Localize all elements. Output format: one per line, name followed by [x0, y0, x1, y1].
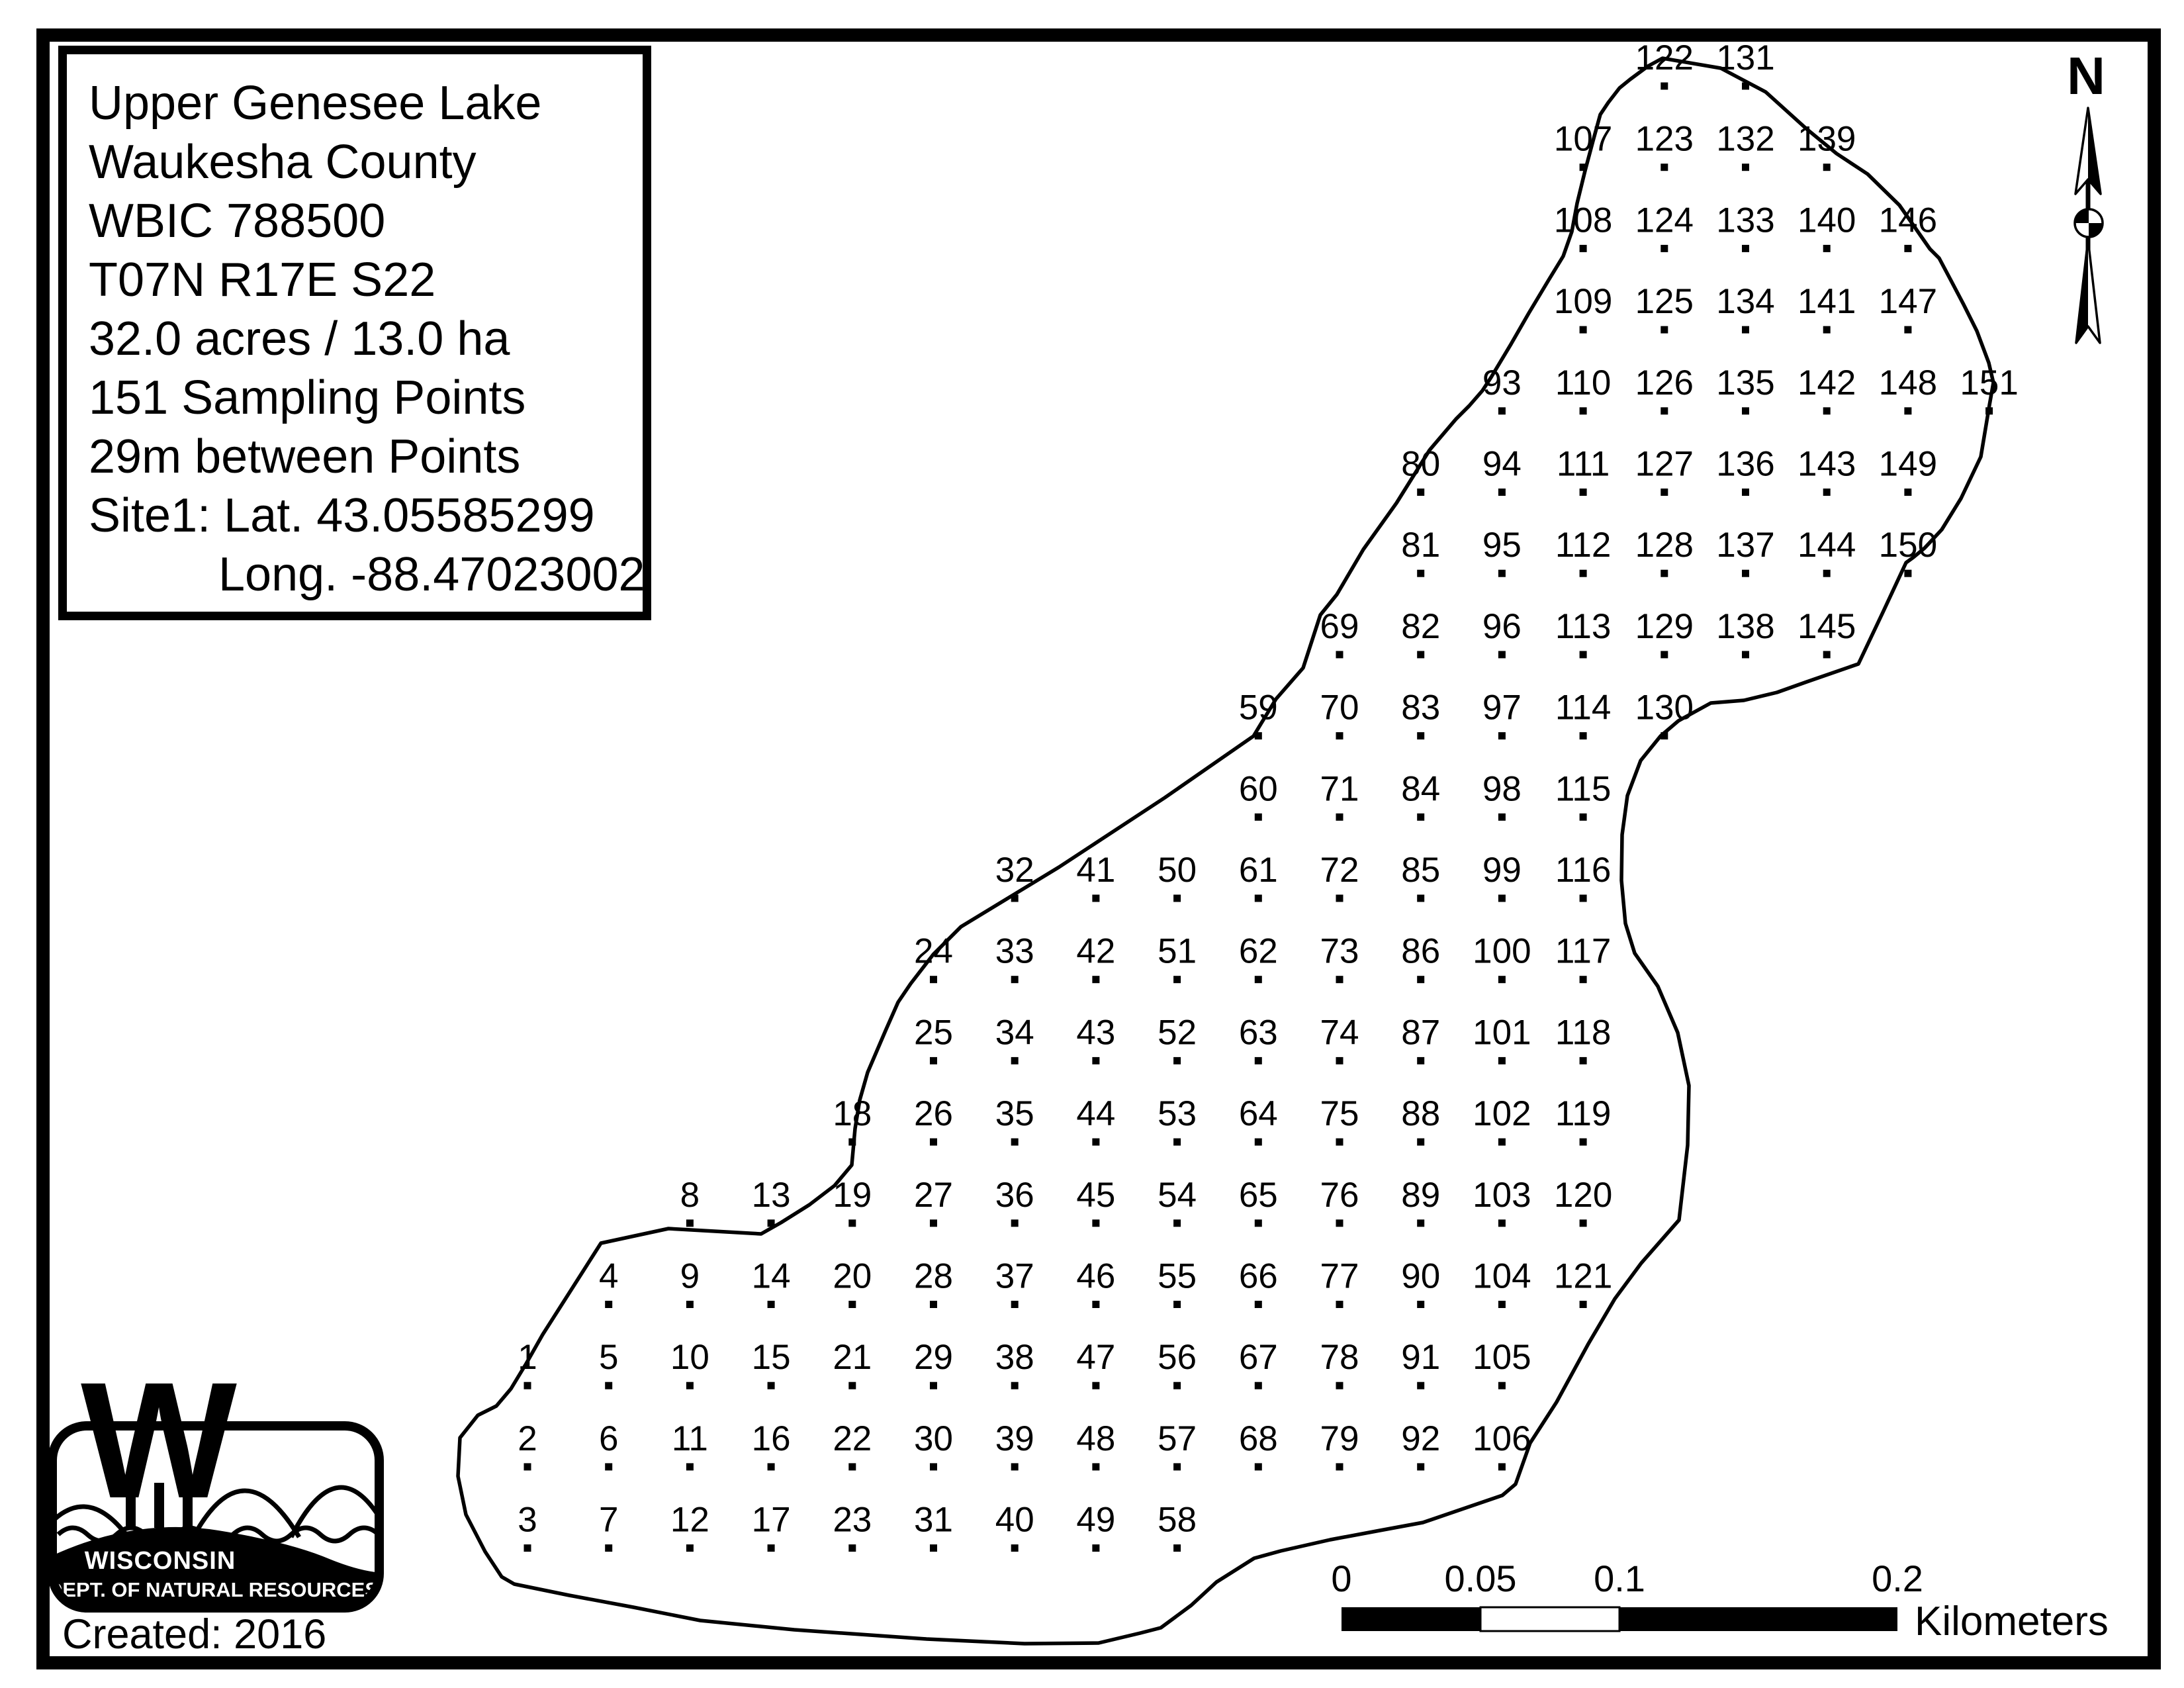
sampling-point-label: 36 [995, 1176, 1034, 1215]
sampling-point-label: 41 [1076, 851, 1115, 890]
sampling-point-label: 126 [1635, 363, 1694, 402]
sampling-point: 52 [1158, 1013, 1197, 1064]
sampling-point-dot [1742, 489, 1749, 496]
sampling-point: 95 [1482, 526, 1522, 577]
sampling-point-label: 140 [1797, 201, 1856, 240]
sampling-point-label: 14 [752, 1257, 791, 1296]
sampling-point: 113 [1555, 607, 1612, 659]
sampling-point: 30 [914, 1419, 953, 1471]
sampling-point-dot [930, 1057, 937, 1064]
lake-info-box: Upper Genesee Lake Waukesha County WBIC … [58, 46, 651, 620]
sampling-point-dot [1742, 407, 1749, 414]
sampling-point: 149 [1879, 445, 1937, 496]
sampling-point-dot [1173, 1057, 1181, 1064]
sampling-point-label: 112 [1555, 526, 1612, 565]
sampling-point: 109 [1554, 282, 1612, 334]
sampling-point-label: 71 [1320, 769, 1359, 808]
sampling-point-label: 94 [1482, 445, 1522, 484]
sampling-point: 58 [1158, 1501, 1197, 1552]
sampling-point-label: 111 [1557, 445, 1610, 484]
sampling-point-label: 24 [914, 932, 953, 971]
sampling-point-dot [1742, 164, 1749, 171]
sampling-point-label: 96 [1482, 607, 1522, 646]
sampling-point-label: 16 [752, 1419, 791, 1458]
sampling-point-label: 65 [1239, 1176, 1278, 1215]
sampling-point-dot [686, 1463, 694, 1470]
sampling-point: 135 [1716, 363, 1774, 415]
sampling-point-dot [1092, 1301, 1099, 1308]
sampling-point-dot [848, 1219, 856, 1227]
sampling-point-dot [686, 1301, 694, 1308]
sampling-point-label: 76 [1320, 1176, 1359, 1215]
sampling-point-dot [1255, 1463, 1262, 1470]
sampling-point-label: 98 [1482, 769, 1522, 808]
sampling-point-dot [1498, 732, 1506, 739]
sampling-point: 20 [833, 1257, 872, 1309]
sampling-point: 18 [833, 1094, 872, 1146]
sampling-point-dot [1336, 732, 1343, 739]
sampling-point-label: 32 [995, 851, 1034, 890]
sampling-point-label: 103 [1473, 1176, 1531, 1215]
sampling-point-label: 138 [1716, 607, 1774, 646]
sampling-point: 87 [1401, 1013, 1440, 1064]
sampling-point: 89 [1401, 1176, 1440, 1227]
sampling-point: 42 [1076, 932, 1115, 984]
sampling-point-label: 101 [1473, 1013, 1531, 1052]
sampling-point-dot [605, 1301, 612, 1308]
sampling-point: 92 [1401, 1419, 1440, 1471]
sampling-point: 79 [1320, 1419, 1359, 1471]
north-arrow-hub-quadrant-nw [2075, 209, 2089, 223]
sampling-point: 120 [1554, 1176, 1612, 1227]
scale-bar-segment-1 [1342, 1607, 1480, 1631]
sampling-point: 91 [1401, 1338, 1440, 1389]
sampling-point-label: 55 [1158, 1257, 1197, 1296]
sampling-point-dot [1092, 895, 1099, 902]
sampling-point: 60 [1239, 769, 1278, 821]
sampling-point-label: 13 [752, 1176, 791, 1215]
sampling-point: 112 [1555, 526, 1612, 577]
sampling-point-dot [686, 1382, 694, 1389]
sampling-point-label: 149 [1879, 445, 1937, 484]
sampling-point: 124 [1635, 201, 1694, 252]
sampling-point-dot [1580, 651, 1587, 658]
sampling-point-dot [1417, 489, 1424, 496]
sampling-point: 132 [1716, 120, 1774, 171]
sampling-point-dot [1498, 1301, 1506, 1308]
sampling-point-label: 54 [1158, 1176, 1197, 1215]
sampling-point-label: 62 [1239, 932, 1278, 971]
sampling-point-label: 124 [1635, 201, 1694, 240]
sampling-point: 93 [1482, 363, 1522, 415]
sampling-point-dot [930, 976, 937, 983]
sampling-point-dot [1092, 1544, 1099, 1552]
sampling-point: 77 [1320, 1257, 1359, 1309]
sampling-point-label: 18 [833, 1094, 872, 1133]
sampling-point-dot [1661, 164, 1668, 171]
sampling-point: 11 [672, 1419, 708, 1471]
sampling-point-dot [1661, 489, 1668, 496]
sampling-point-label: 64 [1239, 1094, 1278, 1133]
sampling-point: 125 [1635, 282, 1694, 334]
sampling-point: 28 [914, 1257, 953, 1309]
sampling-point-label: 70 [1320, 688, 1359, 727]
sampling-point: 69 [1320, 607, 1359, 659]
sampling-point-dot [1985, 407, 1993, 414]
sampling-point-dot [768, 1382, 775, 1389]
sampling-point-dot [1417, 1301, 1424, 1308]
sampling-point-dot [1255, 1057, 1262, 1064]
sampling-point-label: 119 [1555, 1094, 1612, 1133]
sampling-point: 1 [518, 1338, 537, 1389]
sampling-point-label: 116 [1555, 851, 1612, 890]
point-spacing: 29m between Points [89, 428, 629, 487]
sampling-point-dot [848, 1463, 856, 1470]
sampling-point-label: 38 [995, 1338, 1034, 1377]
sampling-point-dot [930, 1301, 937, 1308]
sampling-point-dot [1336, 1219, 1343, 1227]
sampling-point: 147 [1879, 282, 1937, 334]
sampling-point-dot [848, 1382, 856, 1389]
sampling-point-dot [1823, 651, 1831, 658]
sampling-point-dot [1498, 651, 1506, 658]
sampling-point-dot [1661, 407, 1668, 414]
sampling-point-label: 34 [995, 1013, 1034, 1052]
sampling-point: 53 [1158, 1094, 1197, 1146]
sampling-point-dot [686, 1544, 694, 1552]
sampling-point: 70 [1320, 688, 1359, 740]
sampling-point-dot [1580, 895, 1587, 902]
sampling-point-dot [1417, 1463, 1424, 1470]
sampling-point: 78 [1320, 1338, 1359, 1389]
sampling-point-label: 66 [1239, 1257, 1278, 1296]
sampling-point-label: 30 [914, 1419, 953, 1458]
sampling-point: 144 [1797, 526, 1856, 577]
sampling-point: 54 [1158, 1176, 1197, 1227]
county-name: Waukesha County [89, 133, 629, 192]
sampling-point: 12 [670, 1501, 709, 1552]
sampling-point-label: 31 [914, 1501, 953, 1540]
sampling-point-label: 92 [1401, 1419, 1440, 1458]
sampling-point-label: 125 [1635, 282, 1694, 321]
sampling-point-dot [605, 1463, 612, 1470]
sampling-point: 7 [599, 1501, 618, 1552]
sampling-point: 145 [1797, 607, 1856, 659]
sampling-point-label: 4 [599, 1257, 618, 1296]
sampling-point: 25 [914, 1013, 953, 1064]
sampling-point-label: 26 [914, 1094, 953, 1133]
sampling-point-dot [1904, 407, 1911, 414]
sampling-point: 8 [680, 1176, 700, 1227]
sampling-point-label: 12 [670, 1501, 709, 1540]
sampling-point-dot [1580, 1301, 1587, 1308]
sampling-point-label: 60 [1239, 769, 1278, 808]
sampling-point-label: 47 [1076, 1338, 1115, 1377]
sampling-point-dot [1823, 570, 1831, 577]
sampling-point-dot [1011, 895, 1019, 902]
sampling-point-dot [1498, 1057, 1506, 1064]
sampling-point-label: 67 [1239, 1338, 1278, 1377]
sampling-point-label: 33 [995, 932, 1034, 971]
sampling-point: 59 [1239, 688, 1278, 740]
sampling-point: 136 [1716, 445, 1774, 496]
sampling-point: 121 [1554, 1257, 1612, 1309]
scale-tick-0: 0 [1331, 1558, 1351, 1599]
scale-tick-02: 0.2 [1872, 1558, 1923, 1599]
sampling-point-dot [1417, 651, 1424, 658]
sampling-point-dot [1417, 732, 1424, 739]
sampling-point-dot [1011, 1139, 1019, 1146]
sampling-point: 75 [1320, 1094, 1359, 1146]
sampling-point-dot [1742, 570, 1749, 577]
scale-bar-segment-2 [1480, 1607, 1619, 1631]
sampling-point-label: 19 [833, 1176, 872, 1215]
sampling-point: 99 [1482, 851, 1522, 902]
sampling-point-label: 68 [1239, 1419, 1278, 1458]
sampling-point: 57 [1158, 1419, 1197, 1471]
lake-area: 32.0 acres / 13.0 ha [89, 310, 629, 369]
sampling-point: 143 [1797, 445, 1856, 496]
sampling-point-dot [1255, 1139, 1262, 1146]
sampling-point-dot [524, 1382, 531, 1389]
sampling-point-label: 137 [1716, 526, 1774, 565]
sampling-point-dot [1823, 489, 1831, 496]
sampling-point-dot [1173, 1463, 1181, 1470]
sampling-point: 16 [752, 1419, 791, 1471]
sampling-point: 65 [1239, 1176, 1278, 1227]
sampling-point: 6 [599, 1419, 618, 1471]
sampling-point-dot [1255, 814, 1262, 821]
created-date-label: Created: 2016 [62, 1611, 326, 1658]
sampling-point: 140 [1797, 201, 1856, 252]
sampling-point: 104 [1473, 1257, 1531, 1309]
sampling-point-dot [1173, 1139, 1181, 1146]
sampling-point-dot [930, 1544, 937, 1552]
sampling-point-dot [1498, 1463, 1506, 1470]
sampling-point-dot [1255, 732, 1262, 739]
sampling-point-label: 135 [1716, 363, 1774, 402]
sampling-point: 5 [599, 1338, 618, 1389]
sampling-point: 141 [1797, 282, 1856, 334]
sampling-point-label: 46 [1076, 1257, 1115, 1296]
sampling-point-label: 9 [680, 1257, 700, 1296]
sampling-point-dot [1092, 1057, 1099, 1064]
sampling-point-label: 8 [680, 1176, 700, 1215]
sampling-point: 49 [1076, 1501, 1115, 1552]
sampling-point-label: 131 [1716, 38, 1774, 77]
sampling-point-label: 129 [1635, 607, 1694, 646]
sampling-point: 22 [833, 1419, 872, 1471]
sampling-point: 10 [670, 1338, 709, 1389]
sampling-point-label: 132 [1716, 120, 1774, 159]
sampling-point-dot [1661, 732, 1668, 739]
sampling-point: 38 [995, 1338, 1034, 1389]
sampling-point: 117 [1555, 932, 1612, 984]
sampling-point-dot [1092, 1463, 1099, 1470]
sampling-point-label: 50 [1158, 851, 1197, 890]
sampling-point: 15 [752, 1338, 791, 1389]
sampling-point-label: 139 [1797, 120, 1856, 159]
logo-state-name: WISCONSIN [85, 1547, 236, 1575]
sampling-point-dot [1742, 651, 1749, 658]
sampling-point-label: 45 [1076, 1176, 1115, 1215]
sampling-point-dot [848, 1301, 856, 1308]
sampling-point: 2 [518, 1419, 537, 1471]
sampling-point-dot [1011, 1463, 1019, 1470]
sampling-point-dot [1417, 1219, 1424, 1227]
sampling-point: 83 [1401, 688, 1440, 740]
sampling-point-dot [1823, 164, 1831, 171]
sampling-point-label: 107 [1554, 120, 1612, 159]
sampling-point: 74 [1320, 1013, 1359, 1064]
sampling-point-dot [930, 1382, 937, 1389]
sampling-point-dot [1173, 1544, 1181, 1552]
sampling-point: 62 [1239, 932, 1278, 984]
sampling-point: 98 [1482, 769, 1522, 821]
sampling-point-dot [930, 1463, 937, 1470]
sampling-point-label: 39 [995, 1419, 1034, 1458]
sampling-point-label: 52 [1158, 1013, 1197, 1052]
sampling-point-label: 150 [1879, 526, 1937, 565]
sampling-point-label: 37 [995, 1257, 1034, 1296]
sampling-point: 115 [1555, 769, 1612, 821]
sampling-point-dot [1823, 407, 1831, 414]
sampling-point-dot [1661, 570, 1668, 577]
sampling-point-label: 133 [1716, 201, 1774, 240]
sampling-point: 48 [1076, 1419, 1115, 1471]
sampling-point: 101 [1473, 1013, 1531, 1064]
sampling-point-dot [768, 1301, 775, 1308]
sampling-point: 122 [1635, 38, 1694, 90]
sampling-point-dot [1661, 651, 1668, 658]
sampling-point-label: 28 [914, 1257, 953, 1296]
sampling-point-label: 110 [1555, 363, 1612, 402]
sampling-point-dot [1417, 1139, 1424, 1146]
sampling-point: 133 [1716, 201, 1774, 252]
sampling-point-dot [1336, 1463, 1343, 1470]
sampling-point: 19 [833, 1176, 872, 1227]
sampling-point-dot [1417, 1057, 1424, 1064]
sampling-point-label: 2 [518, 1419, 537, 1458]
sampling-point: 150 [1879, 526, 1937, 577]
sampling-point-dot [1580, 489, 1587, 496]
sampling-point-dot [1580, 976, 1587, 983]
sampling-point: 105 [1473, 1338, 1531, 1389]
sampling-point-label: 74 [1320, 1013, 1359, 1052]
sampling-point-label: 11 [672, 1419, 708, 1458]
sampling-point: 139 [1797, 120, 1856, 171]
sampling-point: 36 [995, 1176, 1034, 1227]
sampling-point-dot [1498, 489, 1506, 496]
sampling-point-label: 73 [1320, 932, 1359, 971]
sampling-point-dot [1336, 1382, 1343, 1389]
sampling-point-dot [1417, 570, 1424, 577]
sampling-point: 39 [995, 1419, 1034, 1471]
sampling-point-dot [1742, 83, 1749, 90]
sampling-point-dot [1498, 814, 1506, 821]
sampling-point-label: 89 [1401, 1176, 1440, 1215]
sampling-point-label: 59 [1239, 688, 1278, 727]
sampling-point: 55 [1158, 1257, 1197, 1309]
sampling-point-dot [1417, 814, 1424, 821]
sampling-point-label: 80 [1401, 445, 1440, 484]
sampling-point-label: 147 [1879, 282, 1937, 321]
sampling-point: 134 [1716, 282, 1774, 334]
sampling-point: 4 [599, 1257, 618, 1309]
sampling-point-label: 99 [1482, 851, 1522, 890]
sampling-point-label: 148 [1879, 363, 1937, 402]
sampling-point-dot [1580, 1219, 1587, 1227]
sampling-point: 23 [833, 1501, 872, 1552]
sampling-point-dot [1092, 1219, 1099, 1227]
sampling-point: 111 [1557, 445, 1610, 496]
sampling-point-label: 48 [1076, 1419, 1115, 1458]
sampling-point: 73 [1320, 932, 1359, 984]
sampling-point-label: 42 [1076, 932, 1115, 971]
sampling-point-label: 15 [752, 1338, 791, 1377]
sampling-point-dot [1255, 895, 1262, 902]
sampling-point-label: 44 [1076, 1094, 1115, 1133]
sampling-point-dot [1580, 1139, 1587, 1146]
sampling-point: 67 [1239, 1338, 1278, 1389]
sampling-point-dot [1092, 1382, 1099, 1389]
sampling-point: 102 [1473, 1094, 1531, 1146]
sampling-point-dot [1580, 407, 1587, 414]
sampling-point: 128 [1635, 526, 1694, 577]
sampling-point-label: 141 [1797, 282, 1856, 321]
sampling-point-dot [1498, 407, 1506, 414]
sampling-point: 129 [1635, 607, 1694, 659]
sampling-point: 63 [1239, 1013, 1278, 1064]
sampling-point: 118 [1555, 1013, 1612, 1064]
sampling-point: 126 [1635, 363, 1694, 415]
sampling-point-dot [930, 1219, 937, 1227]
sampling-point-dot [1011, 1219, 1019, 1227]
sampling-point-dot [605, 1544, 612, 1552]
scale-tick-01: 0.1 [1594, 1558, 1645, 1599]
sampling-point-label: 97 [1482, 688, 1522, 727]
sampling-point-label: 127 [1635, 445, 1694, 484]
sampling-point-dot [1904, 326, 1911, 334]
sampling-point-label: 6 [599, 1419, 618, 1458]
sampling-point-dot [1255, 1382, 1262, 1389]
sampling-point: 76 [1320, 1176, 1359, 1227]
sampling-point-dot [1580, 245, 1587, 252]
sampling-point-dot [1092, 1139, 1099, 1146]
sampling-point-dot [1173, 895, 1181, 902]
sampling-point-label: 122 [1635, 38, 1694, 77]
sampling-point: 24 [914, 932, 953, 984]
sampling-point-label: 57 [1158, 1419, 1197, 1458]
sampling-point-dot [1417, 1382, 1424, 1389]
sampling-point-label: 17 [752, 1501, 791, 1540]
sampling-point-label: 113 [1555, 607, 1612, 646]
sampling-point-label: 22 [833, 1419, 872, 1458]
sampling-point-label: 82 [1401, 607, 1440, 646]
sampling-point-label: 87 [1401, 1013, 1440, 1052]
sampling-point: 90 [1401, 1257, 1440, 1309]
sampling-point-dot [1336, 651, 1343, 658]
sampling-point-dot [1255, 1301, 1262, 1308]
sampling-point-dot [1173, 1301, 1181, 1308]
logo-w-monogram: W [81, 1348, 237, 1532]
sampling-point: 66 [1239, 1257, 1278, 1309]
site1-latitude: Site1: Lat. 43.05585299 [89, 487, 629, 545]
sampling-point: 64 [1239, 1094, 1278, 1146]
sampling-point-dot [1011, 1057, 1019, 1064]
sampling-point-dot [1498, 1382, 1506, 1389]
sampling-point-label: 115 [1555, 769, 1612, 808]
